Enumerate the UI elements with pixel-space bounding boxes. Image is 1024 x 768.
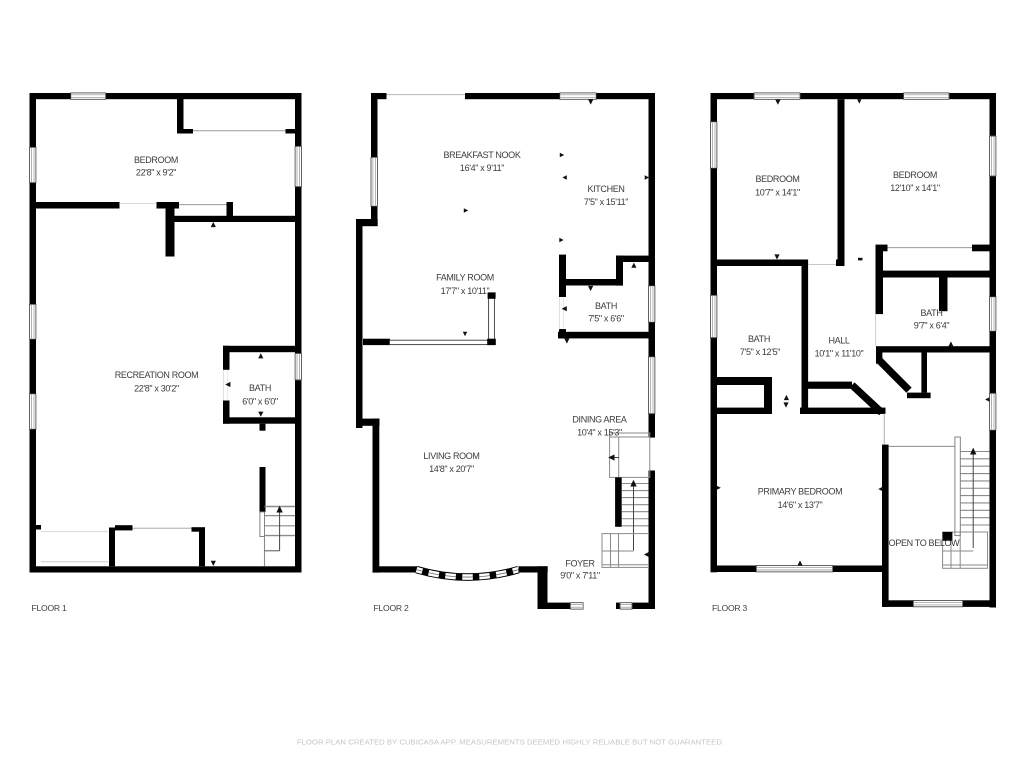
svg-text:BREAKFAST NOOK: BREAKFAST NOOK [444, 150, 521, 160]
svg-text:FAMILY ROOM: FAMILY ROOM [436, 273, 494, 283]
svg-text:22'8" x 30'2": 22'8" x 30'2" [134, 384, 179, 394]
svg-text:9'0" x 7'11": 9'0" x 7'11" [560, 571, 600, 581]
svg-text:9'7" x 6'4": 9'7" x 6'4" [914, 321, 950, 331]
svg-text:7'5" x 6'6": 7'5" x 6'6" [588, 314, 624, 324]
svg-text:BEDROOM: BEDROOM [755, 174, 799, 184]
svg-text:22'8" x 9'2": 22'8" x 9'2" [136, 168, 176, 178]
svg-text:BATH: BATH [921, 308, 943, 318]
svg-text:17'7" x 10'11": 17'7" x 10'11" [441, 286, 490, 296]
svg-text:10'1" x 11'10": 10'1" x 11'10" [815, 349, 864, 359]
svg-text:10'7" x 14'1": 10'7" x 14'1" [755, 188, 800, 198]
svg-text:FLOOR 2: FLOOR 2 [374, 603, 409, 613]
svg-text:BATH: BATH [595, 301, 617, 311]
svg-text:FLOOR 3: FLOOR 3 [712, 603, 747, 613]
svg-text:BATH: BATH [748, 334, 770, 344]
svg-text:HALL: HALL [828, 336, 849, 346]
svg-text:FLOOR 1: FLOOR 1 [32, 603, 67, 613]
svg-text:16'4" x 9'11": 16'4" x 9'11" [460, 163, 504, 173]
svg-text:7'5" x 15'11": 7'5" x 15'11" [584, 197, 628, 207]
svg-text:BEDROOM: BEDROOM [134, 155, 178, 165]
svg-text:6'0" x 6'0": 6'0" x 6'0" [242, 397, 278, 407]
svg-text:LIVING ROOM: LIVING ROOM [423, 451, 479, 461]
svg-text:12'10" x 14'1": 12'10" x 14'1" [890, 183, 940, 193]
svg-text:10'4" x 15'3": 10'4" x 15'3" [577, 427, 622, 437]
svg-text:KITCHEN: KITCHEN [587, 184, 624, 194]
svg-text:7'5" x 12'5": 7'5" x 12'5" [740, 347, 780, 357]
svg-text:BATH: BATH [249, 383, 271, 393]
svg-text:PRIMARY BEDROOM: PRIMARY BEDROOM [758, 487, 842, 497]
svg-text:OPEN TO BELOW: OPEN TO BELOW [889, 538, 960, 548]
svg-text:FOYER: FOYER [565, 559, 595, 569]
svg-text:DINING AREA: DINING AREA [572, 415, 627, 425]
svg-text:BEDROOM: BEDROOM [893, 170, 937, 180]
svg-text:RECREATION ROOM: RECREATION ROOM [115, 370, 199, 380]
svg-text:14'8" x 20'7": 14'8" x 20'7" [429, 464, 474, 474]
svg-text:FLOOR PLAN CREATED BY CUBICASA: FLOOR PLAN CREATED BY CUBICASA APP. MEAS… [297, 738, 724, 747]
svg-text:14'6" x 13'7": 14'6" x 13'7" [778, 500, 823, 510]
